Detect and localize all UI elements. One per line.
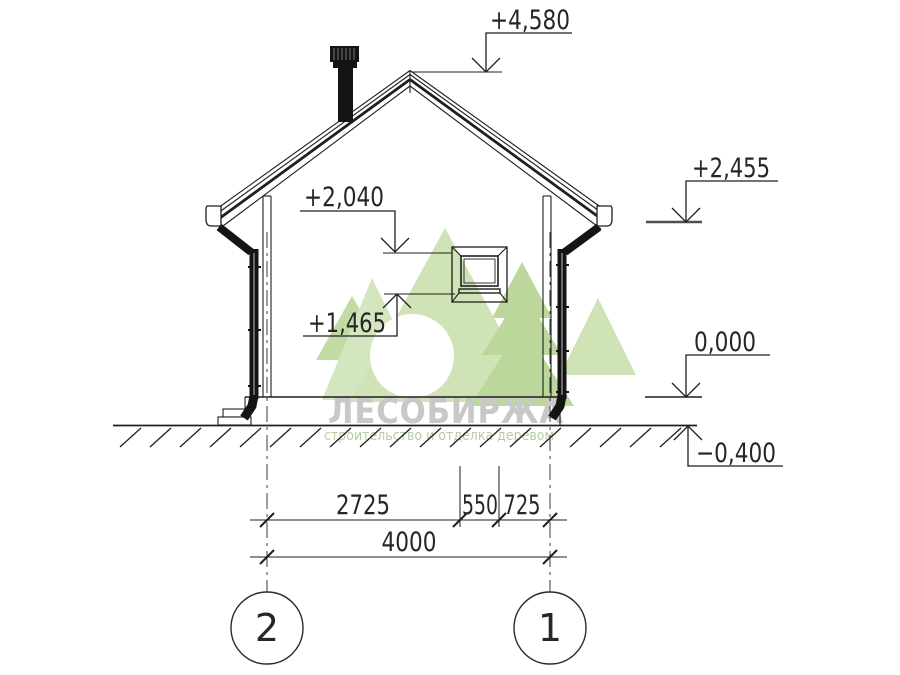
gutter-left [206, 206, 221, 226]
gutter-right [597, 206, 612, 226]
dim-label-2725: 2725 [336, 490, 390, 521]
elevation-mark-eave [672, 181, 778, 222]
elevation-mark-floor [672, 355, 770, 397]
dim-label-550: 550 [462, 490, 498, 521]
axis-bubbles: 2 1 [231, 592, 586, 664]
elevation-mark-ridge [472, 33, 572, 72]
dim-label-4000: 4000 [382, 527, 437, 558]
elevation-label-eave: +2,455 [692, 153, 770, 184]
axis-label-1: 1 [538, 606, 562, 650]
downspout-left [219, 227, 261, 418]
elevation-label-window-top: +2,040 [304, 182, 384, 213]
dimension-line-upper: 2725 550 725 [250, 490, 567, 527]
elevation-label-ground: −0,400 [696, 438, 776, 469]
elevation-mark-window-top [300, 211, 409, 252]
elevation-label-floor: 0,000 [694, 327, 756, 358]
axis-label-2: 2 [255, 606, 279, 650]
elevation-label-ridge: +4,580 [490, 5, 570, 36]
elevation-label-window-sill: +1,465 [308, 308, 386, 339]
logo-tree-right [560, 298, 636, 375]
house-section-drawing: ЛЕСОБИРЖА строительство и отделка дерево… [0, 0, 900, 675]
drawing-canvas: ЛЕСОБИРЖА строительство и отделка дерево… [0, 0, 900, 675]
dim-label-725: 725 [504, 490, 541, 521]
dimension-block: 2725 550 725 4000 [250, 466, 567, 564]
dimension-line-lower: 4000 [250, 527, 567, 564]
